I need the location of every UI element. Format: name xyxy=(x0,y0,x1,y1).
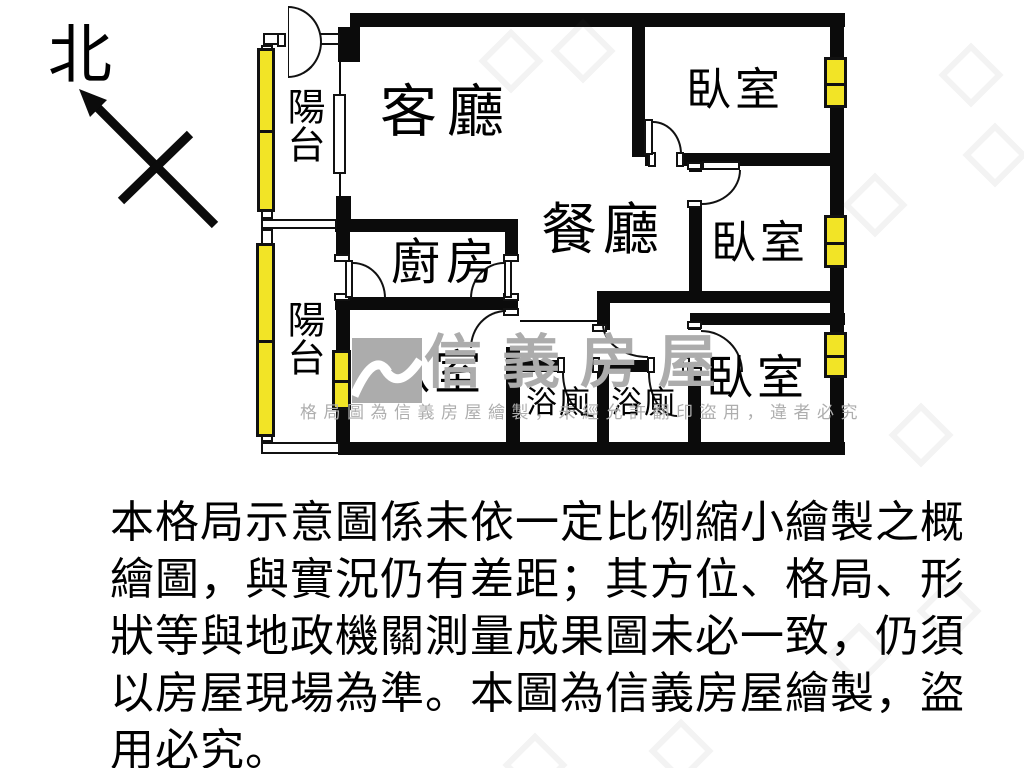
watermark-brand-text: 信義房屋 xyxy=(424,334,736,392)
door-leaf xyxy=(702,161,740,170)
room-label-dining: 餐廳 xyxy=(541,203,665,259)
disclaimer-line: 以房屋現場為準。本圖為信義房屋繪製，盜 xyxy=(110,665,990,722)
sinyi-logo-watermark xyxy=(352,338,422,403)
pattern-diamond-icon xyxy=(550,18,615,83)
pattern-diamond-icon xyxy=(938,42,1003,107)
room-label-bedroom-top-right: 臥室 xyxy=(686,68,784,113)
door-leaf xyxy=(504,260,512,298)
window xyxy=(256,243,275,437)
disclaimer-text: 本格局示意圖係未依一定比例縮小繪製之概 繪圖，與實況仍有差距；其方位、格局、形 … xyxy=(110,494,990,768)
room-label-living: 客廳 xyxy=(380,84,514,141)
wall xyxy=(338,27,360,62)
sliding-window xyxy=(333,94,346,174)
door-leaf xyxy=(644,119,653,155)
wall xyxy=(335,219,518,232)
disclaimer-line: 狀等與地政機關測量成果圖未必一致，仍須 xyxy=(110,608,990,665)
wall xyxy=(335,297,518,310)
wall xyxy=(830,13,844,57)
door-leaf xyxy=(345,260,353,298)
room-label-kitchen: 廚房 xyxy=(391,238,501,287)
floor-plan-canvas: 北 xyxy=(0,0,1024,768)
wall xyxy=(350,13,845,27)
balcony-wall xyxy=(261,442,340,454)
door-jamb xyxy=(687,321,702,329)
window xyxy=(824,215,847,268)
window xyxy=(332,350,351,410)
balcony-wall xyxy=(261,219,337,229)
disclaimer-line: 本格局示意圖係未依一定比例縮小繪製之概 xyxy=(110,494,990,551)
door-jamb xyxy=(687,200,702,208)
window-divider xyxy=(258,340,273,343)
door-jamb xyxy=(277,33,286,47)
window xyxy=(824,332,847,378)
entry-door xyxy=(288,6,322,78)
north-arrow-icon xyxy=(55,75,230,235)
wall xyxy=(690,313,845,325)
door-arc xyxy=(353,262,386,298)
window-divider xyxy=(826,355,845,358)
window xyxy=(824,57,847,108)
wall xyxy=(830,108,844,215)
pattern-diamond-icon xyxy=(962,122,1024,187)
pattern-diamond-icon xyxy=(842,172,907,237)
door-arc xyxy=(653,121,682,154)
room-label-bedroom-mid-right: 臥室 xyxy=(711,221,809,266)
disclaimer-line: 繪圖，與實況仍有差距；其方位、格局、形 xyxy=(110,551,990,608)
wall xyxy=(689,205,702,303)
window-divider xyxy=(826,242,845,245)
door-jamb xyxy=(687,162,702,170)
window xyxy=(257,48,275,212)
wall xyxy=(338,442,845,455)
window-divider xyxy=(334,380,349,383)
room-label-balcony-upper: 陽台 xyxy=(283,87,321,217)
door-jamb xyxy=(676,152,684,167)
wall-thin xyxy=(520,320,600,322)
watermark-notice-text: 格局圖為信義房屋繪製，未經允許翻印盜用，違者必究 xyxy=(300,404,864,421)
disclaimer-line: 用必究。 xyxy=(110,722,990,768)
wall xyxy=(336,196,351,219)
wall xyxy=(597,291,844,303)
pattern-diamond-icon xyxy=(888,402,953,467)
window-divider xyxy=(826,83,845,86)
door-arc xyxy=(702,170,741,205)
window-divider xyxy=(259,130,273,133)
